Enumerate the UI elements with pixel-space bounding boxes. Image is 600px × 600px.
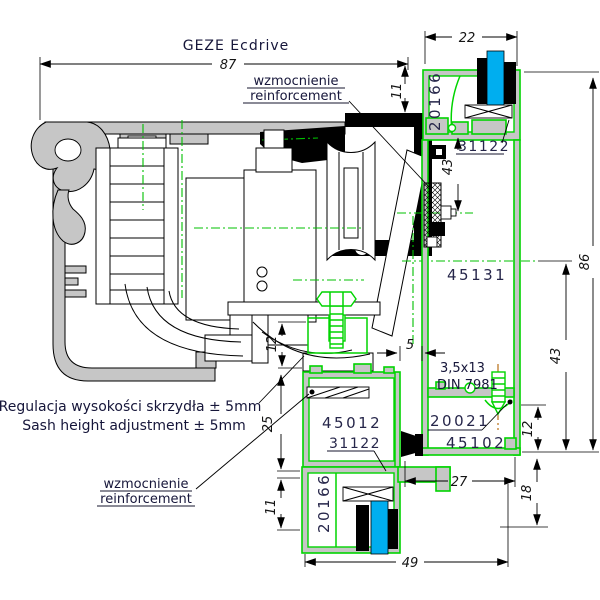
clamp-bolt-shank <box>330 306 343 348</box>
drawing-svg: 87 22 11 86 43 <box>0 0 600 600</box>
dim-bottom-offset: 18 <box>500 459 548 527</box>
label-screw-size: 3,5x13 <box>440 361 485 376</box>
dim-43-lock: 43 <box>441 159 456 176</box>
technical-drawing: 87 22 11 86 43 <box>0 0 600 600</box>
reinforcement-top-en: reinforcement <box>250 89 342 104</box>
dim-27: 27 <box>451 475 468 490</box>
dim-top-offset: 11 <box>390 66 405 112</box>
belt-block <box>96 148 178 304</box>
dim-overall-height: 86 <box>522 72 599 452</box>
mullion-right-wall <box>514 140 520 455</box>
dim-sash-top-height: 25 <box>261 375 300 471</box>
carriage-bar <box>228 302 380 315</box>
dim-12-right: 12 <box>521 421 536 438</box>
dim-43-right: 43 <box>549 348 564 365</box>
adjustment-note-en: Sash height adjustment ± 5mm <box>22 418 246 434</box>
dim-11-bottom: 11 <box>264 499 279 516</box>
reinforcement-top-pl: wzmocnienie <box>254 74 339 89</box>
dim-sash-bottom-height: 11 <box>264 478 300 530</box>
reinforcement-bottom-pl: wzmocnienie <box>104 477 189 492</box>
brush-holder <box>477 58 488 104</box>
brush-holder <box>356 505 369 551</box>
dim-overall-width: 87 <box>40 57 408 120</box>
label-frame-bottom-profile: 45102 <box>446 434 506 452</box>
suspension-clamp <box>308 292 367 353</box>
dim-11-top: 11 <box>390 83 405 100</box>
label-mullion-profile: 45131 <box>447 266 507 284</box>
adjustment-note-pl: Regulacja wysokości skrzydła ± 5mm <box>0 399 261 415</box>
dim-87: 87 <box>220 58 237 73</box>
brush-holder <box>504 62 516 104</box>
drive-title: GEZE Ecdrive <box>183 38 290 54</box>
brush-holder <box>387 509 398 549</box>
dim-5: 5 <box>406 338 414 353</box>
label-frame-top-profile: 20166 <box>426 71 444 131</box>
dim-49: 49 <box>402 556 419 571</box>
brush-seal-bottom <box>371 501 388 554</box>
label-glazing-bead: 20021 <box>430 412 490 430</box>
dim-12-left: 12 <box>265 336 280 353</box>
brush-seal-top <box>487 51 504 113</box>
reinforcement-bottom-en: reinforcement <box>100 492 192 507</box>
dim-22: 22 <box>459 31 476 46</box>
label-sash-profile: 45012 <box>322 414 382 432</box>
dim-frame-right-height: 43 <box>538 261 572 450</box>
dim-86: 86 <box>578 254 593 271</box>
leader-dot <box>508 400 513 405</box>
dim-gap: 5 <box>377 338 445 361</box>
cover-boss <box>170 134 208 144</box>
label-gasket-bottom: 31122 <box>329 436 381 452</box>
label-sash-bottom-profile: 20166 <box>315 473 333 533</box>
dim-bead-chamber: 12 <box>521 405 546 450</box>
clamp-bolt-head <box>317 292 356 306</box>
leader-dot <box>310 390 315 395</box>
label-screw-standard: DIN 7981 <box>437 378 498 393</box>
dim-18: 18 <box>520 485 535 502</box>
